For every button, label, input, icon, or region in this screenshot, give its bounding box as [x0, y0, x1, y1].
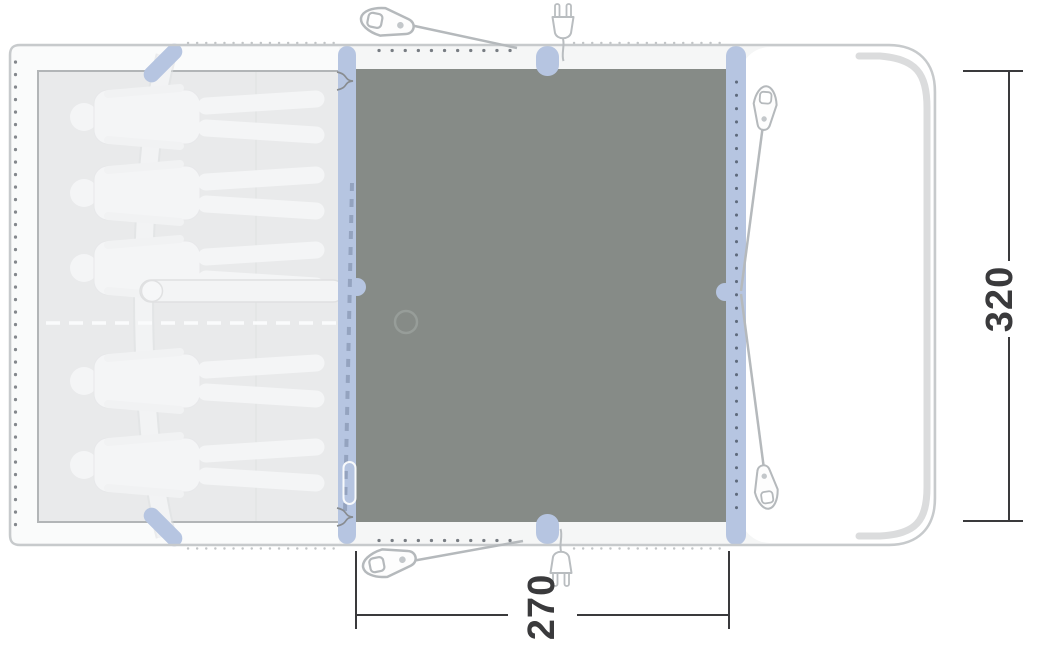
peg-icon-bottom	[360, 543, 418, 581]
peg-icon-top	[358, 4, 416, 42]
sleeping-area	[38, 56, 344, 536]
dimension-depth-label: 320	[979, 266, 1021, 332]
sleeping-mat	[140, 280, 344, 302]
dimension-width-label: 270	[521, 574, 563, 640]
tent-floorplan-diagram: 320 270	[0, 0, 1037, 651]
living-area-floor	[355, 69, 727, 522]
front-pole-hub	[716, 283, 734, 301]
roof-pole-stub-bottom	[536, 514, 559, 544]
roof-pole-stub-top	[536, 46, 559, 76]
floorplan-canvas: 320 270	[0, 0, 1037, 651]
